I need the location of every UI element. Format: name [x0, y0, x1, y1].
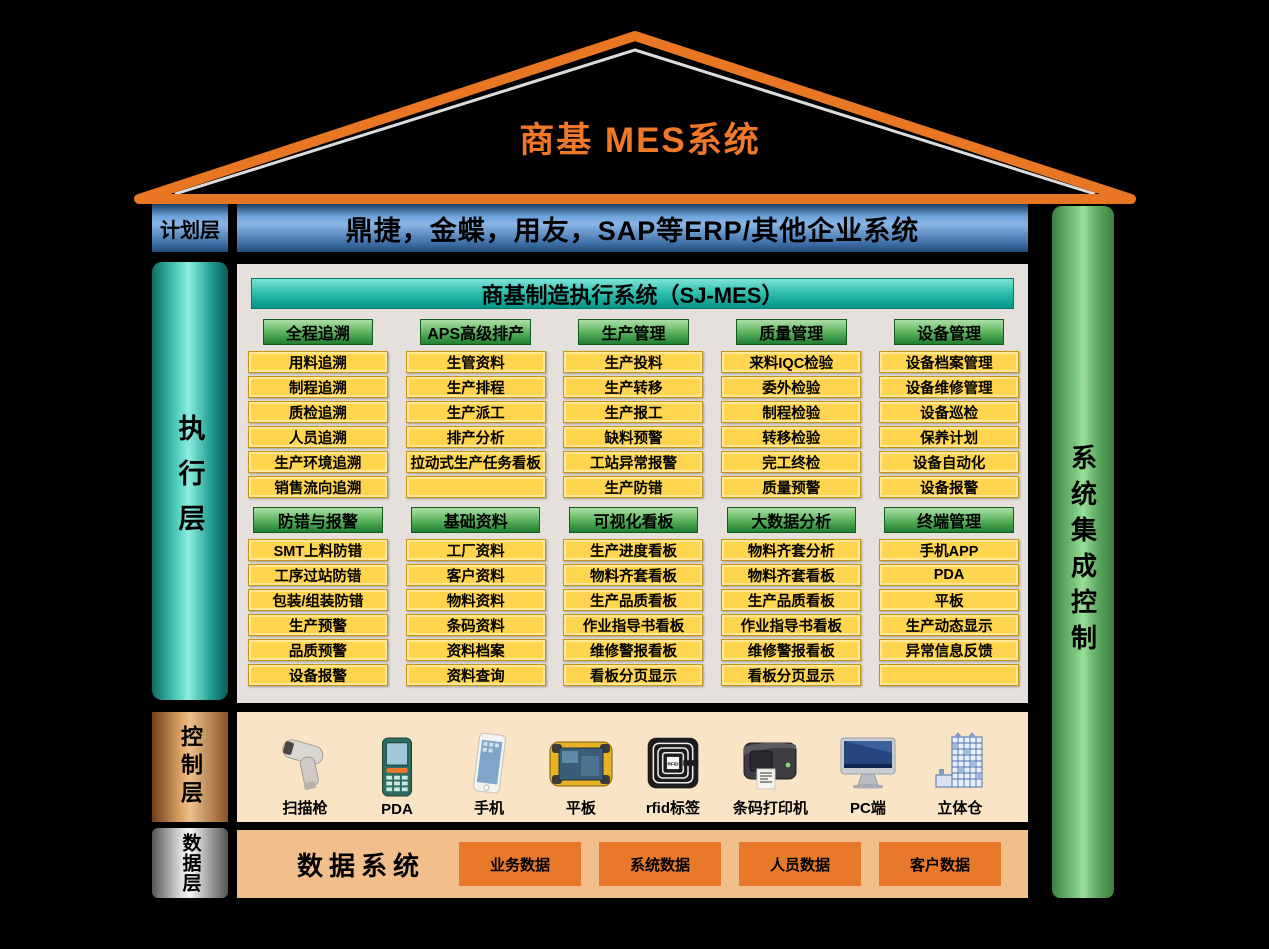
module-item: 异常信息反馈 [879, 639, 1019, 661]
rfid-tag-icon: RFID [641, 730, 705, 796]
barcode-printer-icon [738, 730, 802, 796]
module-item [406, 476, 546, 498]
system-title: 商基 MES系统 [460, 112, 820, 163]
module-item: 作业指导书看板 [721, 614, 861, 636]
module-item: 制程检验 [721, 401, 861, 423]
module-item: 包装/组装防错 [248, 589, 388, 611]
device-label: 立体仓 [937, 797, 982, 818]
data-system-title: 数据系统 [297, 846, 459, 883]
data-chip: 系统数据 [599, 842, 721, 886]
module-item: 工厂资料 [406, 539, 546, 561]
module-item: 维修警报看板 [563, 639, 703, 661]
data-system-bar: 数据系统 业务数据系统数据人员数据客户数据 [237, 830, 1028, 898]
module-item: 缺料预警 [563, 426, 703, 448]
pc-monitor-icon [836, 730, 900, 796]
plan-layer-label: 计划层 [152, 204, 228, 252]
module-item: PDA [879, 564, 1019, 586]
module-item: 人员追溯 [248, 426, 388, 448]
device: 平板 [549, 730, 613, 818]
module-group: 质量管理来料IQC检验委外检验制程检验转移检验完工终检质量预警 [712, 319, 870, 498]
svg-text:RFID: RFID [667, 761, 679, 766]
module-group-header: 防错与报警 [253, 507, 382, 533]
module-group: 基础资料工厂资料客户资料物料资料条码资料资料档案资料查询 [397, 507, 555, 686]
device-label: PC端 [850, 797, 886, 818]
module-item: 物料齐套分析 [721, 539, 861, 561]
device-label: rfid标签 [646, 797, 700, 818]
module-item: 看板分页显示 [563, 664, 703, 686]
module-group: 大数据分析物料齐套分析物料齐套看板生产品质看板作业指导书看板维修警报看板看板分页… [712, 507, 870, 686]
control-layer-label: 控制层 [152, 712, 228, 822]
barcode-scanner-icon [273, 730, 337, 796]
tablet-icon [549, 730, 613, 796]
pda-icon [365, 734, 429, 800]
module-item: 工序过站防错 [248, 564, 388, 586]
module-item: 设备维修管理 [879, 376, 1019, 398]
module-item: 来料IQC检验 [721, 351, 861, 373]
module-group-header: 基础资料 [411, 507, 540, 533]
module-item: 生产进度看板 [563, 539, 703, 561]
module-item: 生产预警 [248, 614, 388, 636]
module-item: 保养计划 [879, 426, 1019, 448]
module-item: 品质预警 [248, 639, 388, 661]
module-item: 拉动式生产任务看板 [406, 451, 546, 473]
module-group-header: 可视化看板 [569, 507, 698, 533]
module-item: 生产品质看板 [563, 589, 703, 611]
module-group: 终端管理手机APPPDA平板生产动态显示异常信息反馈 [870, 507, 1028, 686]
module-item: 质检追溯 [248, 401, 388, 423]
device: 条码打印机 [733, 730, 808, 818]
execution-layer-label: 执行层 [152, 262, 228, 700]
module-item: 生产防错 [563, 476, 703, 498]
module-row-bottom: 防错与报警SMT上料防错工序过站防错包装/组装防错生产预警品质预警设备报警基础资… [239, 507, 1028, 686]
module-group-header: 全程追溯 [263, 319, 373, 345]
warehouse-icon [928, 730, 992, 796]
module-item: 维修警报看板 [721, 639, 861, 661]
module-item: 设备档案管理 [879, 351, 1019, 373]
module-item: 条码资料 [406, 614, 546, 636]
data-chip: 业务数据 [459, 842, 581, 886]
device-label: 手机 [474, 797, 504, 818]
module-item: 生产投料 [563, 351, 703, 373]
module-item: 生产转移 [563, 376, 703, 398]
device-label: 扫描枪 [282, 797, 327, 818]
module-group-header: 大数据分析 [727, 507, 856, 533]
module-group: 生产管理生产投料生产转移生产报工缺料预警工站异常报警生产防错 [555, 319, 713, 498]
module-item: 手机APP [879, 539, 1019, 561]
data-chips: 业务数据系统数据人员数据客户数据 [459, 842, 1019, 886]
module-group-header: 终端管理 [884, 507, 1013, 533]
sjmes-header: 商基制造执行系统（SJ-MES） [251, 278, 1014, 309]
device-label: 平板 [566, 797, 596, 818]
device-label: 条码打印机 [733, 797, 808, 818]
device: RFIDrfid标签 [641, 730, 705, 818]
device: 扫描枪 [273, 730, 337, 818]
module-item: 生产派工 [406, 401, 546, 423]
module-group: 防错与报警SMT上料防错工序过站防错包装/组装防错生产预警品质预警设备报警 [239, 507, 397, 686]
module-item: 用料追溯 [248, 351, 388, 373]
module-item: 工站异常报警 [563, 451, 703, 473]
data-layer-label: 数据层 [152, 828, 228, 898]
data-chip: 客户数据 [879, 842, 1001, 886]
module-group: 可视化看板生产进度看板物料齐套看板生产品质看板作业指导书看板维修警报看板看板分页… [555, 507, 713, 686]
module-item: 看板分页显示 [721, 664, 861, 686]
system-integration-control-bar: 系统集成控制 [1052, 206, 1114, 898]
module-item: 平板 [879, 589, 1019, 611]
device: PDA [365, 734, 429, 818]
module-item: 委外检验 [721, 376, 861, 398]
module-item: 物料齐套看板 [721, 564, 861, 586]
module-group: 设备管理设备档案管理设备维修管理设备巡检保养计划设备自动化设备报警 [870, 319, 1028, 498]
module-item: 排产分析 [406, 426, 546, 448]
module-item: 设备自动化 [879, 451, 1019, 473]
module-item: 生管资料 [406, 351, 546, 373]
erp-systems-bar: 鼎捷，金蝶，用友，SAP等ERP/其他企业系统 [237, 204, 1028, 252]
device: 立体仓 [928, 730, 992, 818]
module-row-top: 全程追溯用料追溯制程追溯质检追溯人员追溯生产环境追溯销售流向追溯APS高级排产生… [239, 319, 1028, 498]
module-group-header: 设备管理 [894, 319, 1004, 345]
module-item: 设备巡检 [879, 401, 1019, 423]
module-group-header: 生产管理 [578, 319, 688, 345]
module-item: 作业指导书看板 [563, 614, 703, 636]
devices-bar: 扫描枪PDA手机平板RFIDrfid标签条码打印机PC端立体仓 [237, 712, 1028, 822]
module-group-header: APS高级排产 [420, 319, 530, 345]
module-item: 完工终检 [721, 451, 861, 473]
module-item: 生产品质看板 [721, 589, 861, 611]
module-item: 设备报警 [879, 476, 1019, 498]
module-item: 生产环境追溯 [248, 451, 388, 473]
module-item [879, 664, 1019, 686]
module-item: 设备报警 [248, 664, 388, 686]
module-item: 物料资料 [406, 589, 546, 611]
module-item: 生产动态显示 [879, 614, 1019, 636]
module-item: 质量预警 [721, 476, 861, 498]
module-item: 物料齐套看板 [563, 564, 703, 586]
module-item: SMT上料防错 [248, 539, 388, 561]
data-chip: 人员数据 [739, 842, 861, 886]
module-item: 资料档案 [406, 639, 546, 661]
module-item: 资料查询 [406, 664, 546, 686]
module-item: 生产报工 [563, 401, 703, 423]
device-label: PDA [381, 801, 413, 818]
module-group: APS高级排产生管资料生产排程生产派工排产分析拉动式生产任务看板 [397, 319, 555, 498]
module-item: 制程追溯 [248, 376, 388, 398]
module-group-header: 质量管理 [736, 319, 846, 345]
device: PC端 [836, 730, 900, 818]
phone-icon [457, 730, 521, 796]
module-item: 客户资料 [406, 564, 546, 586]
device: 手机 [457, 730, 521, 818]
module-item: 销售流向追溯 [248, 476, 388, 498]
module-item: 生产排程 [406, 376, 546, 398]
module-group: 全程追溯用料追溯制程追溯质检追溯人员追溯生产环境追溯销售流向追溯 [239, 319, 397, 498]
module-item: 转移检验 [721, 426, 861, 448]
